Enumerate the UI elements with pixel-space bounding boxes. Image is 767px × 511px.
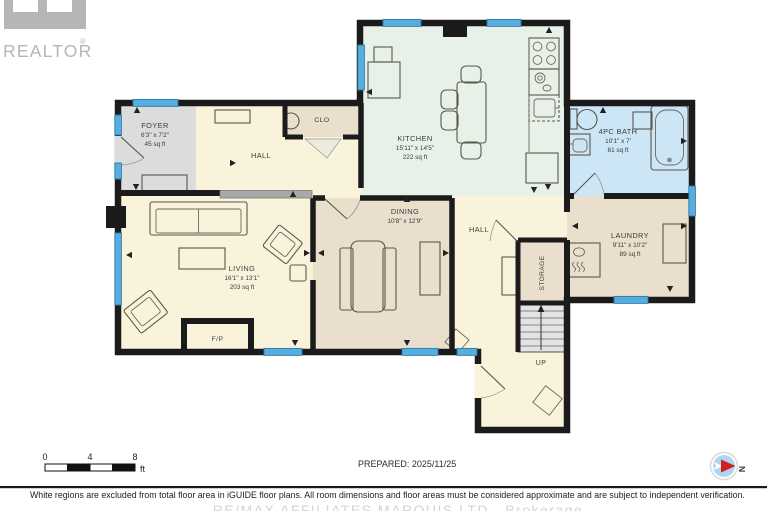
compass: N bbox=[711, 453, 748, 480]
half-wall bbox=[220, 191, 312, 199]
bath-area: 61 sq ft bbox=[608, 147, 629, 154]
living-label: LIVING bbox=[229, 264, 256, 273]
scale-bar: 0 4 8 ft bbox=[42, 452, 145, 474]
window bbox=[402, 348, 438, 355]
foyer-label: FOYER bbox=[141, 121, 168, 130]
clo-label: CLO bbox=[314, 117, 329, 124]
kitchen-label: KITCHEN bbox=[397, 134, 432, 143]
living-dims: 16'1" x 13'1" bbox=[224, 275, 259, 282]
footer-disclaimer: White regions are excluded from total fl… bbox=[30, 490, 745, 500]
up-label: UP bbox=[536, 360, 547, 367]
kitchen-area: 222 sq ft bbox=[403, 154, 428, 161]
brokerage-watermark: RE/MAX AFFILIATES MARQUIS LTD., Brokerag… bbox=[213, 502, 584, 511]
hall-center-label: HALL bbox=[469, 225, 489, 234]
window bbox=[614, 296, 648, 303]
bath-label: 4PC BATH bbox=[599, 127, 638, 136]
kitchen-dims: 15'11" x 14'5" bbox=[396, 145, 434, 152]
foyer-area: 45 sq ft bbox=[145, 141, 166, 148]
dining-dims: 10'8" x 12'9" bbox=[387, 218, 422, 225]
foyer-dims: 6'3" x 7'2" bbox=[141, 132, 169, 139]
kitchen-floor bbox=[362, 23, 567, 196]
footer-divider bbox=[0, 486, 767, 488]
window bbox=[264, 348, 302, 355]
window bbox=[689, 186, 696, 216]
realtor-logo: REALTOR ® bbox=[3, 0, 92, 61]
window bbox=[133, 99, 178, 106]
laundry-label: LAUNDRY bbox=[611, 231, 649, 240]
scale-tick-0: 0 bbox=[42, 452, 47, 462]
storage-label: STORAGE bbox=[539, 255, 546, 290]
registered-mark: ® bbox=[80, 37, 86, 46]
compass-n: N bbox=[737, 466, 747, 472]
window bbox=[383, 19, 421, 26]
hall-upper-label: HALL bbox=[251, 151, 271, 160]
scale-tick-8: 8 bbox=[132, 452, 137, 462]
bath-dims: 10'1" x 7' bbox=[605, 138, 631, 145]
floor-plan-canvas: FOYER 6'3" x 7'2" 45 sq ft HALL CLO KITC… bbox=[0, 0, 767, 511]
dining-label: DINING bbox=[391, 207, 419, 216]
foyer-floor bbox=[118, 103, 196, 193]
window bbox=[457, 348, 477, 355]
living-area: 203 sq ft bbox=[230, 284, 255, 291]
window bbox=[115, 233, 122, 305]
window bbox=[487, 19, 521, 26]
scale-unit: ft bbox=[140, 464, 146, 474]
floor-plan-page: FOYER 6'3" x 7'2" 45 sq ft HALL CLO KITC… bbox=[0, 0, 767, 511]
window bbox=[358, 45, 365, 90]
laundry-dims: 9'11" x 10'2" bbox=[613, 242, 648, 249]
prepared-date: PREPARED: 2025/11/25 bbox=[358, 459, 456, 469]
fireplace-label: F/P bbox=[212, 336, 224, 343]
scale-tick-4: 4 bbox=[87, 452, 92, 462]
laundry-area: 89 sq ft bbox=[620, 251, 641, 258]
floor-fills bbox=[118, 23, 692, 430]
window bbox=[115, 163, 122, 179]
window bbox=[115, 115, 122, 135]
